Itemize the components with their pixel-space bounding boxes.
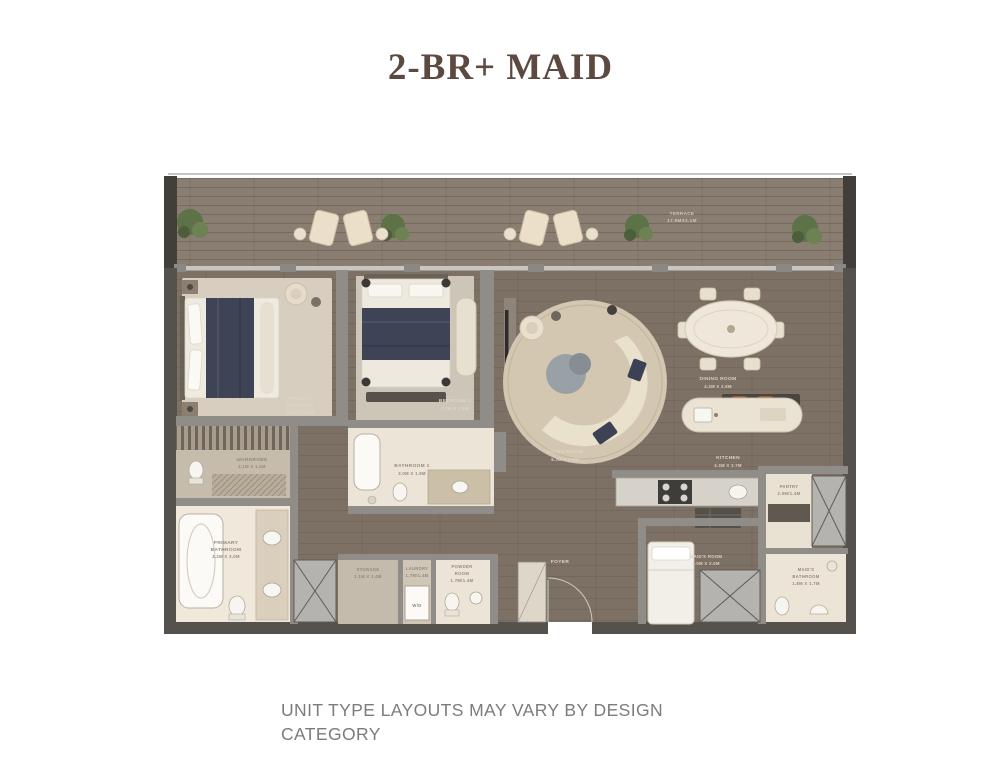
bathroom1-dims: 3.0M X 1.9M: [398, 471, 426, 476]
laundry-dims: 1.7M/1.4M: [406, 573, 429, 578]
pillow: [188, 350, 203, 391]
pantry-label: PANTRY: [780, 484, 799, 489]
primary-bedroom-label: PRIMARY: [288, 396, 313, 402]
terrace-wall-left: [164, 176, 177, 268]
stove: [658, 480, 692, 504]
laundry-label: LAUNDRY: [406, 566, 429, 571]
washer-dryer-label: W/D: [412, 603, 421, 608]
kitchen-dims: 4.3M X 2.7M: [714, 463, 742, 468]
maids-bathroom-label: MAID'S: [798, 567, 815, 572]
maids-room-dims: 3.0M X 2.0M: [692, 561, 720, 566]
living-dims: 5.3M X 4.4M: [551, 457, 579, 462]
primary-bathroom-dims: 3.2M X 3.0M: [212, 554, 240, 559]
primary-bedroom-label: BEDROOM: [286, 403, 314, 409]
chaise: [456, 298, 476, 376]
bed-bench: [366, 392, 446, 402]
pillow: [368, 284, 402, 297]
faucet-icon: [714, 413, 718, 417]
powder-label: POWDER: [452, 564, 473, 569]
wardrobe-rug: [212, 474, 286, 496]
storage-label: STORAGE: [356, 567, 379, 572]
duvet-navy: [362, 308, 450, 360]
bed-headboard: [364, 274, 448, 279]
bed-throw: [260, 302, 274, 394]
vanity: [256, 510, 288, 620]
dining-chair: [700, 358, 716, 370]
toilet-icon: [393, 483, 407, 501]
lamp-icon: [187, 406, 193, 412]
dining-chair: [744, 358, 760, 370]
lamp-icon: [362, 279, 371, 288]
closet-shelving: [176, 426, 290, 450]
room-laundry: LAUNDRY 1.7M/1.4M W/D: [403, 560, 431, 624]
floorplan-page: 2-BR+ MAID: [0, 0, 1001, 763]
terrace-label: TERRACE: [670, 211, 695, 216]
bedroom1-dims: 4.2M X 3.6M: [441, 406, 469, 411]
duvet-navy: [206, 298, 254, 398]
room-storage: STORAGE 1.1M X 1.4M: [338, 560, 398, 624]
primary-bathroom-label: PRIMARY: [214, 540, 239, 546]
dining-chair: [700, 288, 716, 300]
foyer-label: FOYER: [551, 559, 569, 565]
burner-icon: [663, 495, 670, 502]
terrace-dims: 17.9MX2.1M: [667, 218, 697, 223]
shaft-icon: [700, 570, 760, 622]
centerpiece: [727, 325, 735, 333]
lamp-icon: [607, 305, 617, 315]
bed-headboard: [180, 296, 185, 400]
sink-icon: [263, 583, 281, 597]
side-table: [311, 297, 321, 307]
shaft-icon: [294, 560, 336, 622]
page-title: 2-BR+ MAID: [0, 46, 1001, 89]
armchair-seat: [291, 289, 302, 300]
burner-icon: [663, 484, 670, 491]
toilet-icon: [775, 597, 789, 615]
toilet-icon: [445, 593, 459, 611]
lamp-icon: [442, 378, 451, 387]
coffee-table: [569, 353, 591, 375]
entrance-opening: [548, 622, 592, 636]
toilet-tank: [445, 610, 459, 616]
maids-room-label: MAID'S ROOM: [690, 554, 723, 559]
room-primary-bathroom: PRIMARY BATHROOM 3.2M X 3.0M: [176, 506, 290, 622]
toilet-tank: [189, 478, 203, 484]
maids-bathroom-dims: 1.8M X 1.7M: [792, 581, 820, 586]
dining-dims: 4.3M X 2.9M: [704, 384, 732, 389]
sink-icon: [470, 592, 482, 604]
powder-dims: 1.7M/1.4M: [451, 578, 474, 583]
living-label: LIVING ROOM: [547, 449, 583, 455]
pillow: [188, 304, 203, 345]
lamp-icon: [362, 378, 371, 387]
primary-bathroom-label: BATHROOM: [211, 547, 242, 553]
bathtub: [354, 434, 380, 490]
kitchen-wall: [612, 470, 766, 478]
lamp-icon: [187, 284, 193, 290]
floorplan-drawing: TERRACE 17.9MX2.1M: [160, 170, 860, 640]
disclaimer-line-2: CATEGORY: [281, 722, 711, 746]
sink-icon: [263, 531, 281, 545]
lamp-icon: [442, 279, 451, 288]
kitchen-label: KITCHEN: [716, 455, 740, 461]
dining-label: DINING ROOM: [700, 376, 737, 382]
kitchen-sink: [729, 485, 747, 499]
toilet-tank: [229, 614, 245, 620]
burner-icon: [681, 495, 688, 502]
toilet-icon: [229, 596, 245, 616]
bathtub: [179, 514, 223, 608]
shaft-icon: [812, 476, 846, 546]
island-sink: [694, 408, 712, 422]
toilet-icon: [189, 461, 203, 479]
room-powder: POWDER ROOM 1.7M/1.4M: [436, 560, 490, 624]
drain-icon: [368, 496, 376, 504]
room-bedroom-1: BEDROOM 1 4.2M X 3.6M: [356, 274, 476, 420]
pantry-dims: 2.0M/1.4M: [778, 491, 801, 496]
room-pantry: PANTRY 2.0M/1.4M: [766, 474, 812, 548]
wardrobe-dims: 2.1M X 1.5M: [238, 464, 266, 469]
room-wardrobe: WARDROBE 2.1M X 1.5M: [176, 426, 290, 498]
terrace-wall-right: [843, 176, 856, 268]
pantry-counter: [768, 504, 810, 522]
bedroom1-label: BEDROOM 1: [439, 398, 471, 404]
terrace: TERRACE 17.9MX2.1M: [164, 174, 856, 268]
storage-dims: 1.1M X 1.4M: [354, 574, 382, 579]
sink-icon: [452, 481, 468, 493]
side-table: [551, 311, 561, 321]
powder-label: ROOM: [455, 571, 470, 576]
disclaimer-text: UNIT TYPE LAYOUTS MAY VARY BY DESIGN CAT…: [281, 698, 711, 746]
burner-icon: [681, 484, 688, 491]
bathroom1-label: BATHROOM 1: [394, 463, 429, 469]
room-primary-bedroom: PRIMARY BEDROOM 4.0M X 4.0M: [180, 278, 332, 418]
pillow: [409, 284, 443, 297]
maids-bathroom-label: BATHROOM: [792, 574, 819, 579]
powder-floor: [436, 560, 490, 624]
room-bathroom-1: BATHROOM 1 3.0M X 1.9M: [348, 428, 494, 506]
terrace-deck: [170, 178, 850, 266]
primary-bedroom-dims: 4.0M X 4.0M: [286, 410, 314, 415]
wardrobe-label: WARDROBE: [236, 457, 268, 463]
disclaimer-line-1: UNIT TYPE LAYOUTS MAY VARY BY DESIGN: [281, 698, 711, 722]
dining-chair: [744, 288, 760, 300]
pillow: [652, 547, 690, 560]
room-maids-bathroom: MAID'S BATHROOM 1.8M X 1.7M: [766, 554, 846, 622]
island-tray: [760, 408, 786, 421]
